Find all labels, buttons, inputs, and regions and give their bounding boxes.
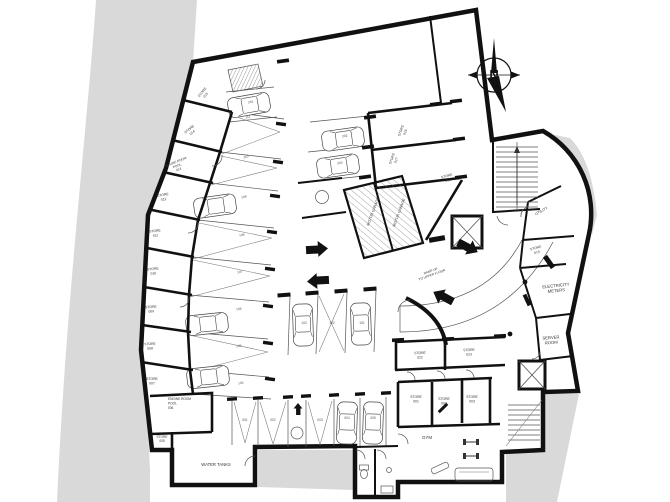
car bbox=[336, 402, 357, 445]
svg-text:001: 001 bbox=[413, 400, 419, 404]
svg-text:007: 007 bbox=[149, 382, 155, 386]
svg-text:009: 009 bbox=[148, 309, 154, 313]
svg-text:ROOM: ROOM bbox=[545, 340, 559, 346]
svg-text:POOL: POOL bbox=[168, 402, 177, 406]
svg-text:STORE: STORE bbox=[466, 395, 478, 399]
svg-text:ENGINE ROOM: ENGINE ROOM bbox=[168, 397, 191, 401]
svg-text:005: 005 bbox=[159, 439, 165, 443]
svg-text:WATER TANKS: WATER TANKS bbox=[201, 462, 231, 467]
floor-plan-page: N STORE015 STORE014 ENGINE ROOMPOOL013 S… bbox=[0, 0, 670, 502]
svg-text:STORE: STORE bbox=[146, 377, 158, 381]
svg-text:STORE: STORE bbox=[410, 395, 422, 399]
bay-number: 101 bbox=[359, 321, 365, 325]
compass-n-label: N bbox=[489, 67, 498, 82]
bay-number: 106 bbox=[236, 307, 242, 312]
bay-number: 109 bbox=[241, 195, 247, 200]
bay-number: 002 bbox=[270, 418, 276, 422]
bay-number: 004 bbox=[344, 416, 350, 420]
bay-number: 203 bbox=[337, 161, 343, 166]
site-strip-bottom bbox=[258, 450, 353, 490]
column-dot bbox=[523, 280, 528, 285]
bay-number: 202 bbox=[342, 134, 348, 139]
car bbox=[185, 312, 229, 336]
floor-plan-drawing: N STORE015 STORE014 ENGINE ROOMPOOL013 S… bbox=[0, 0, 670, 502]
bay-number: 001 bbox=[242, 418, 248, 422]
bay-number: 111 bbox=[245, 115, 251, 120]
svg-text:003: 003 bbox=[469, 400, 475, 404]
svg-text:006: 006 bbox=[168, 406, 174, 410]
bay-number: 102 bbox=[329, 321, 335, 325]
svg-text:GYM: GYM bbox=[422, 435, 432, 440]
bay-number: 110 bbox=[243, 155, 249, 160]
svg-text:008: 008 bbox=[147, 346, 153, 350]
svg-text:010: 010 bbox=[150, 271, 156, 276]
elevator-shaft-south bbox=[519, 361, 545, 389]
bay-number: 103 bbox=[301, 321, 307, 325]
svg-text:022: 022 bbox=[417, 355, 423, 359]
column-dot bbox=[508, 332, 513, 337]
svg-text:011: 011 bbox=[153, 233, 159, 238]
svg-text:002: 002 bbox=[441, 402, 447, 406]
car bbox=[292, 304, 313, 347]
bay-number: 201 bbox=[248, 100, 254, 105]
svg-text:STORE: STORE bbox=[438, 397, 450, 401]
compass-east-pointer bbox=[511, 72, 520, 79]
bay-number: 107 bbox=[237, 270, 243, 275]
car bbox=[362, 402, 383, 445]
bay-number: 105 bbox=[236, 344, 242, 349]
bay-number: 003 bbox=[317, 418, 323, 422]
bay-number: 108 bbox=[239, 233, 245, 238]
bay-number: 104 bbox=[238, 381, 244, 386]
room-label-gym: GYM bbox=[422, 435, 432, 440]
bay-number: 005 bbox=[370, 416, 376, 420]
room-label-water-tanks: WATER TANKS bbox=[201, 462, 231, 467]
svg-text:023: 023 bbox=[466, 352, 472, 356]
room-label-server-room: SERVERROOM bbox=[542, 334, 560, 345]
